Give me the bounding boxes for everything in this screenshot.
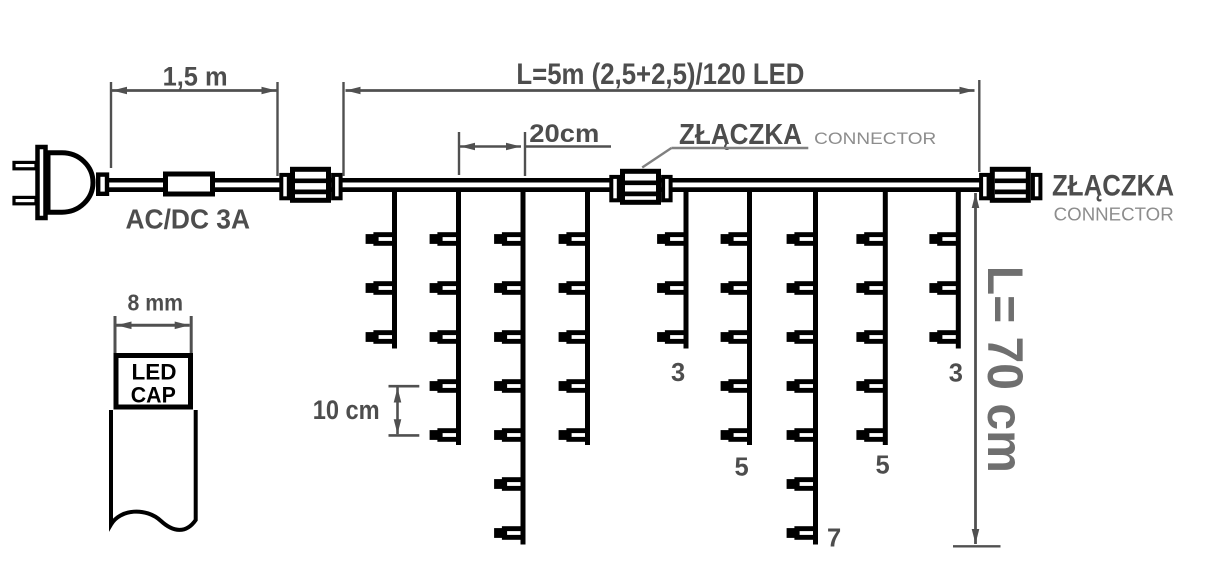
svg-text:1,5 m: 1,5 m xyxy=(163,62,228,92)
svg-text:7: 7 xyxy=(827,524,841,552)
svg-text:5: 5 xyxy=(876,452,890,480)
svg-text:3: 3 xyxy=(671,359,685,387)
svg-text:10 cm: 10 cm xyxy=(313,395,380,425)
svg-text:5: 5 xyxy=(735,454,749,482)
svg-text:CAP: CAP xyxy=(131,382,176,407)
svg-text:20cm: 20cm xyxy=(529,120,599,148)
svg-text:LED: LED xyxy=(132,360,177,385)
svg-text:ZŁĄCZKA: ZŁĄCZKA xyxy=(679,119,802,151)
svg-text:ZŁĄCZKA: ZŁĄCZKA xyxy=(1052,170,1174,203)
svg-text:CONNECTOR: CONNECTOR xyxy=(814,130,936,148)
svg-text:AC/DC 3A: AC/DC 3A xyxy=(126,204,251,235)
svg-text:8 mm: 8 mm xyxy=(128,290,184,316)
svg-text:L=5m (2,5+2,5)/120 LED: L=5m (2,5+2,5)/120 LED xyxy=(516,58,804,91)
svg-text:L= 70 cm: L= 70 cm xyxy=(977,266,1033,473)
svg-text:3: 3 xyxy=(949,360,963,388)
svg-text:CONNECTOR: CONNECTOR xyxy=(1054,204,1174,225)
